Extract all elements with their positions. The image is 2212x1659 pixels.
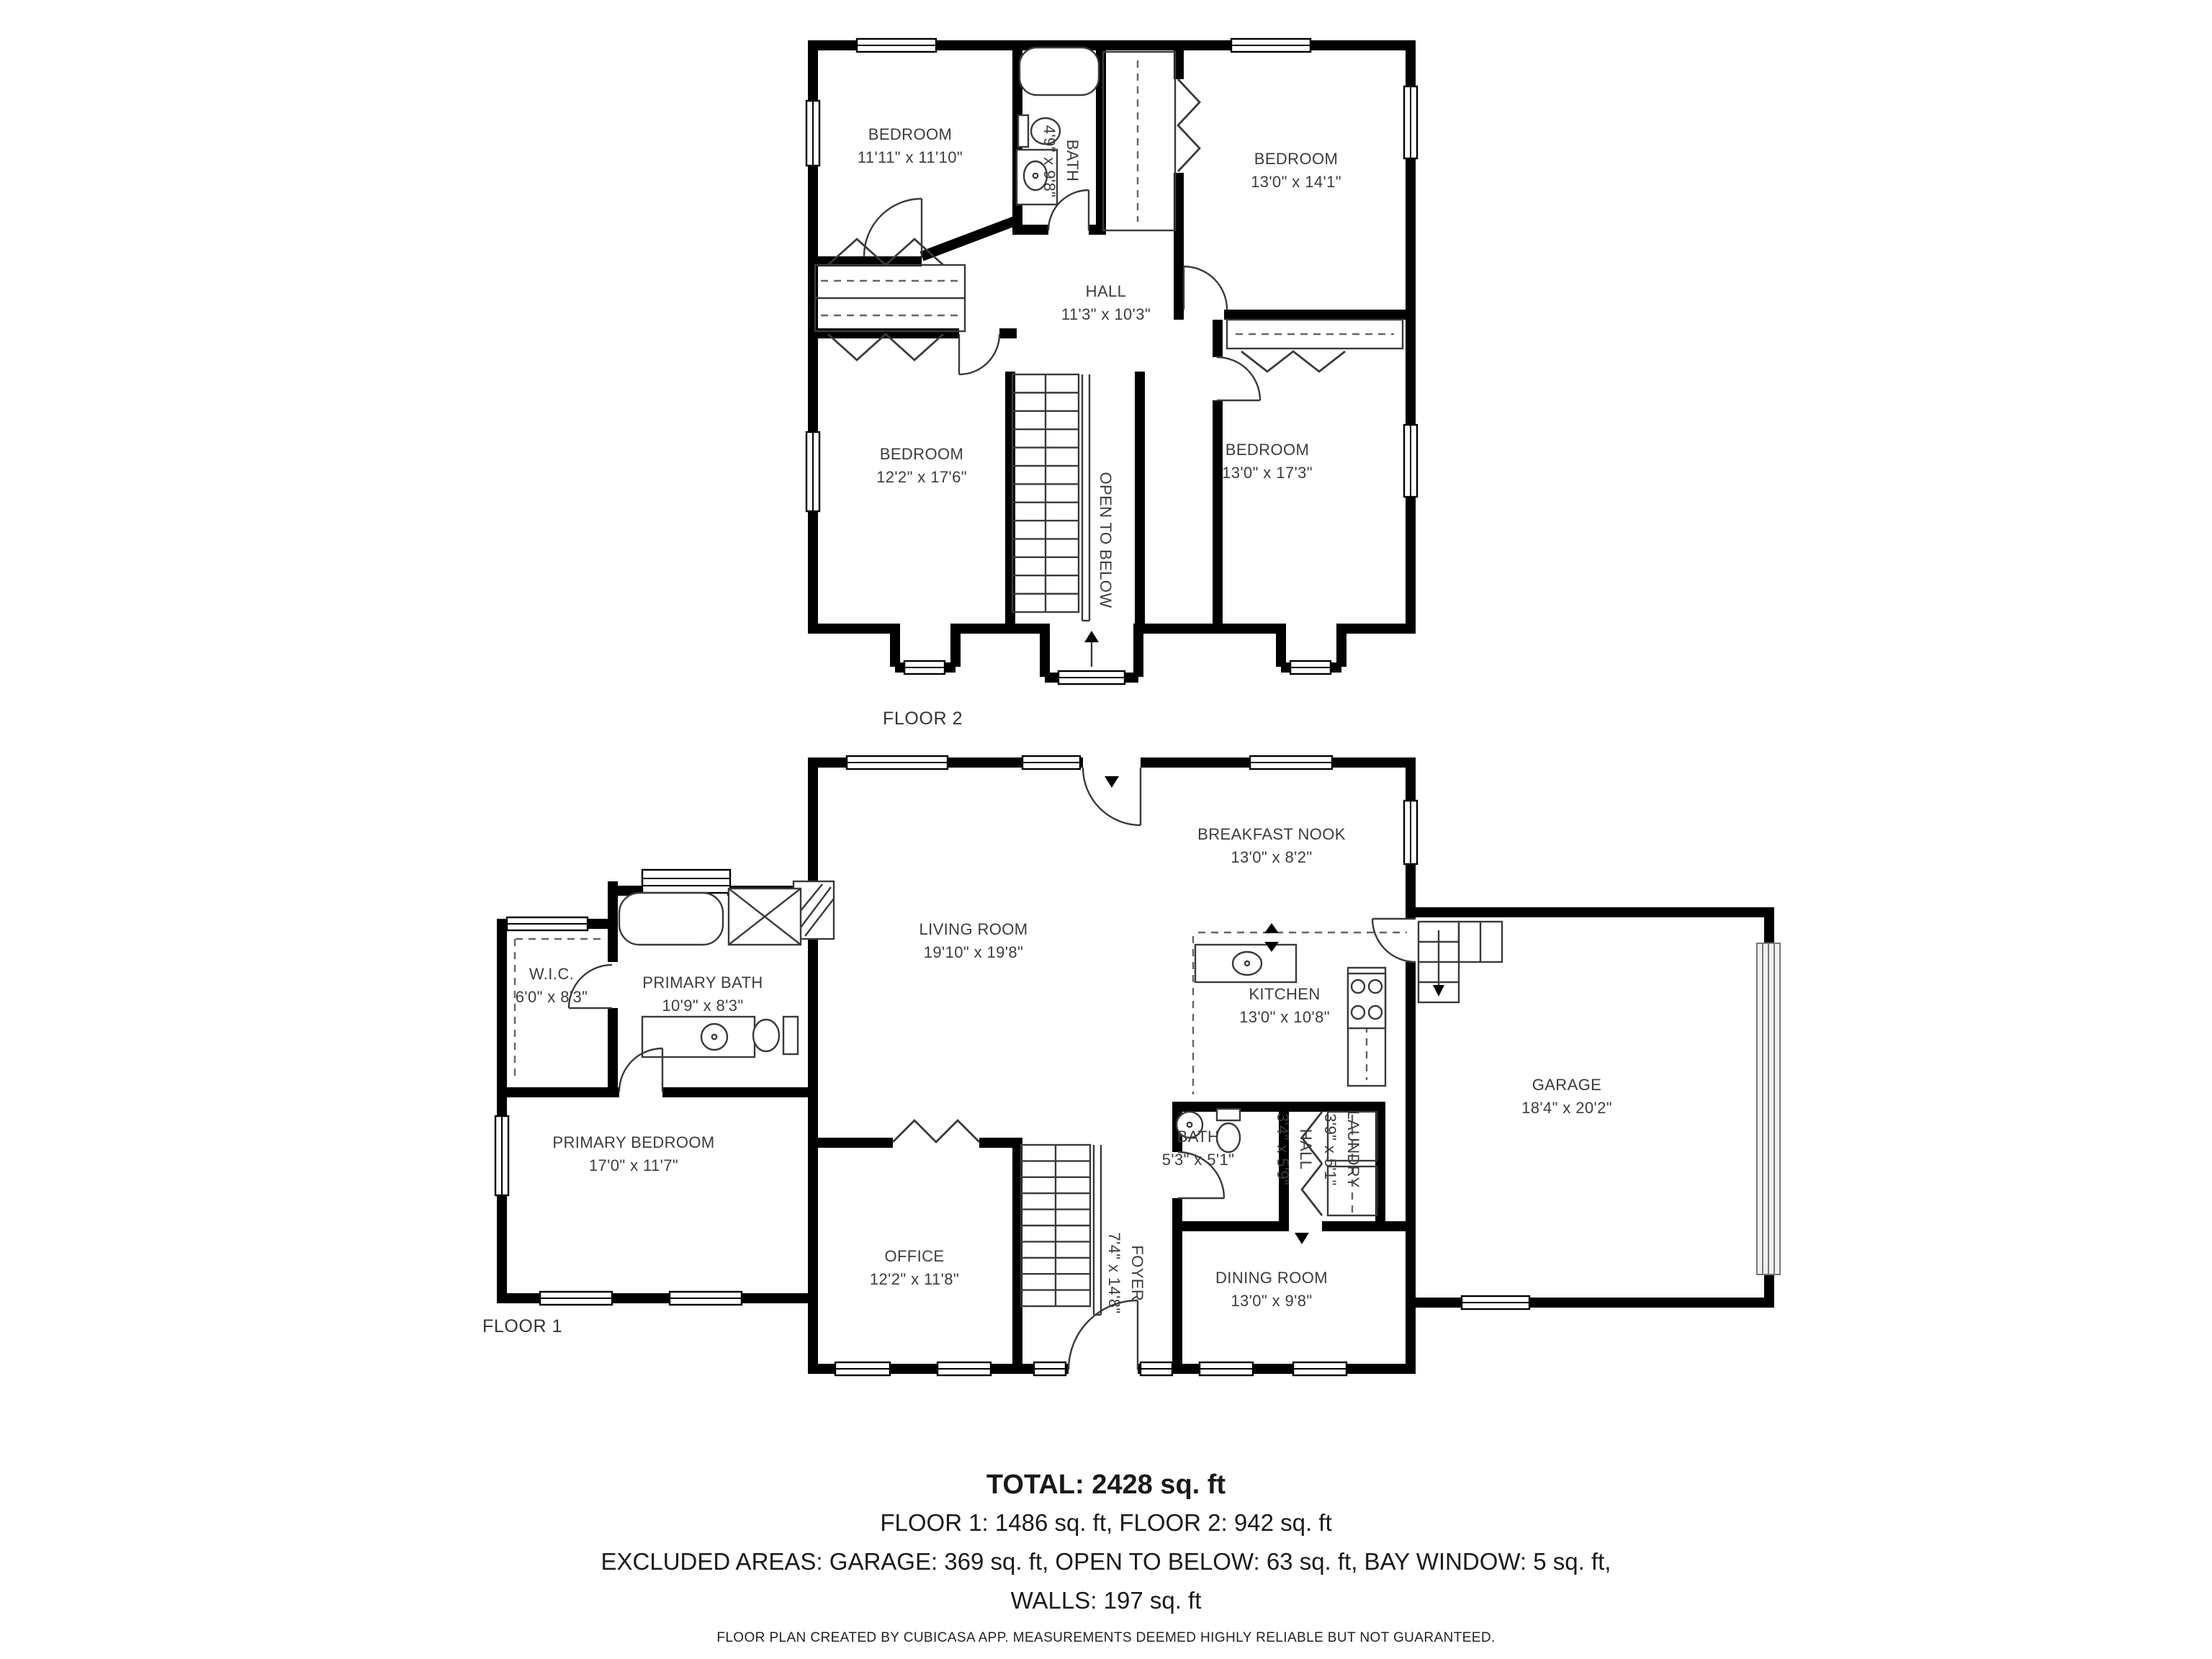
room-label-primary-bath: PRIMARY BATH 10'9" x 8'3": [642, 974, 763, 1020]
bathtub-icon: [1020, 48, 1099, 95]
label-open-to-below: OPEN TO BELOW: [1092, 472, 1115, 608]
footer-disclaimer: FLOOR PLAN CREATED BY CUBICASA APP. MEAS…: [0, 1630, 2212, 1646]
room-label-hall-floor1: HALL 3'4" x 5'9": [1269, 1113, 1315, 1186]
room-label-dining-room: DINING ROOM 13'0" x 9'8": [1215, 1269, 1328, 1315]
floor-plan-drawing: [0, 0, 2212, 1659]
staircase-floor1: [1021, 1145, 1101, 1315]
room-label-bath-floor2: BATH 4'9" x 9'8": [1035, 125, 1082, 198]
floor-plan-page: BEDROOM 11'11" x 11'10" BATH 4'9" x 9'8"…: [0, 0, 2212, 1659]
room-label-kitchen: KITCHEN 13'0" x 10'8": [1239, 985, 1330, 1031]
caption-floor1: FLOOR 1: [482, 1316, 562, 1336]
toilet-icon: [753, 1017, 798, 1054]
area-summary: TOTAL: 2428 sq. ft FLOOR 1: 1486 sq. ft,…: [0, 1466, 2212, 1646]
vanity-sink-icon: [642, 1017, 755, 1057]
room-label-bath-floor1: BATH 5'3" x 5'1": [1162, 1128, 1235, 1174]
summary-floors: FLOOR 1: 1486 sq. ft, FLOOR 2: 942 sq. f…: [0, 1505, 2212, 1544]
summary-excluded: EXCLUDED AREAS: GARAGE: 369 sq. ft, OPEN…: [0, 1544, 2212, 1583]
stove-icon: [1348, 974, 1385, 1028]
summary-total: TOTAL: 2428 sq. ft: [0, 1466, 2212, 1505]
staircase-floor2: [1012, 374, 1089, 621]
room-label-bedroom-lower-right: BEDROOM 13'0" x 17'3": [1222, 441, 1313, 487]
room-label-foyer: FOYER 7'4" x 14'8": [1100, 1232, 1146, 1313]
shower-icon: [729, 889, 801, 945]
bathtub-icon: [619, 893, 723, 945]
caption-floor2: FLOOR 2: [883, 709, 963, 729]
room-label-office: OFFICE 12'2" x 11'8": [870, 1247, 959, 1293]
room-label-hall-floor2: HALL 11'3" x 10'3": [1061, 282, 1151, 328]
room-label-breakfast-nook: BREAKFAST NOOK 13'0" x 8'2": [1197, 825, 1346, 871]
room-label-wic: W.I.C. 6'0" x 8'3": [516, 965, 588, 1011]
room-label-laundry: LAUNDRY 3'9" x 5'1": [1316, 1110, 1362, 1188]
room-label-bedroom-upper-left: BEDROOM 11'11" x 11'10": [858, 125, 963, 171]
garage-steps: [1419, 922, 1502, 1002]
garage-door: [1757, 943, 1780, 1274]
room-label-primary-bedroom: PRIMARY BEDROOM 17'0" x 11'7": [552, 1133, 714, 1179]
bay-window: [642, 870, 730, 893]
room-label-bedroom-upper-right: BEDROOM 13'0" x 14'1": [1251, 150, 1341, 196]
room-label-bedroom-lower-left: BEDROOM 12'2" x 17'6": [876, 445, 967, 491]
room-label-garage: GARAGE 18'4" x 20'2": [1521, 1076, 1612, 1122]
room-label-living-room: LIVING ROOM 19'10" x 19'8": [919, 920, 1028, 966]
summary-walls: WALLS: 197 sq. ft: [0, 1583, 2212, 1622]
